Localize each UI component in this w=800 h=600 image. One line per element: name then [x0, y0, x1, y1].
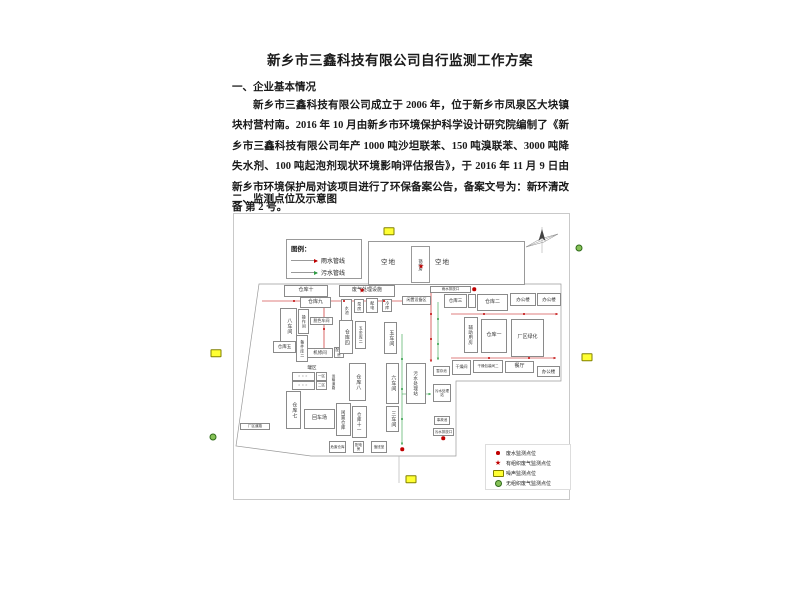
legend-row-sewage: 污水管线 — [291, 268, 357, 277]
diagram-box: 污水排放口 — [433, 428, 454, 436]
diagram-box: 污水处理站 — [406, 363, 426, 404]
diagram-box: 干燥间 — [452, 360, 471, 375]
fugitive-gas-point-label: 无组织废气监测点位 — [506, 480, 551, 487]
document-page: 新乡市三鑫科技有限公司自行监测工作方案 一、企业基本情况 新乡市三鑫科技有限公司… — [0, 0, 800, 600]
diagram-box: ○○○ — [292, 372, 315, 381]
diagram-box: ○○○ — [292, 381, 315, 390]
legend-sewage-label: 污水管线 — [321, 268, 345, 277]
diagram-box: 仓库七 — [286, 391, 301, 429]
diagram-box: 仓库八 — [349, 363, 366, 401]
diagram-box: 五金库二 — [355, 321, 366, 349]
diagram-box: 值班室 — [371, 441, 387, 453]
diagram-box: 污水处理站 — [433, 384, 451, 402]
diagram-box: 仓库一 — [481, 319, 507, 353]
diagram-frame: 图例： 雨水管线 污水管线 空地 锅炉房 空地 — [233, 213, 570, 500]
point-legend-row: ★ 有组织废气监测点位 — [492, 458, 570, 468]
diagram-box: 闲置仓库 — [336, 403, 351, 436]
noise-point-west — [211, 349, 222, 357]
diagram-box: 回车场 — [304, 409, 335, 429]
organized-gas-point-label: 有组织废气监测点位 — [506, 460, 551, 467]
wastewater-point-outlet-south — [441, 436, 445, 440]
diagram-box: 一区 — [316, 372, 327, 381]
rain-pipe-dot — [430, 338, 432, 340]
diagram-box: 闲置设备区 — [402, 296, 431, 305]
diagram-box: 配电房 — [353, 441, 364, 453]
section-heading-company-info: 一、企业基本情况 — [232, 79, 316, 94]
legend-rain-label: 雨水管线 — [321, 256, 345, 265]
organized-gas-point-icon: ★ — [492, 460, 504, 467]
rain-pipe-dot — [383, 300, 385, 302]
diagram-box: 脱色车间 — [310, 317, 333, 325]
diagram-box: 办公楼 — [510, 293, 536, 306]
wastewater-point-label: 废水监测点位 — [506, 450, 536, 457]
diagram-box: 六车间 — [386, 363, 399, 404]
diagram-box: 餐厅 — [505, 361, 534, 373]
rain-pipe-dot — [483, 313, 485, 315]
point-legend-row: 噪声监测点位 — [492, 468, 570, 478]
organized-gas-point-boiler: ★ — [418, 264, 424, 271]
organized-gas-point-treatment: ★ — [359, 288, 365, 295]
diagram-box: 暂存池 — [433, 366, 450, 376]
diagram-box: 辅助用房 — [464, 317, 478, 353]
monitoring-point-legend: 废水监测点位 ★ 有组织废气监测点位 噪声监测点位 无组织废气监测点位 — [485, 444, 571, 490]
noise-point-east — [582, 353, 593, 361]
rain-pipe-dot — [488, 357, 490, 359]
legend-row-rain: 雨水管线 — [291, 256, 357, 265]
diagram-box: 仓库四 — [339, 320, 353, 354]
rain-pipe-dot — [528, 357, 530, 359]
diagram-box: 办公楼 — [537, 293, 561, 306]
diagram-box: 操作间 — [298, 309, 309, 334]
wastewater-point-main — [400, 447, 404, 451]
sewage-pipeline-arrow-icon — [291, 272, 317, 273]
diagram-box: 机修间 — [307, 348, 333, 358]
open-area-right-label: 空地 — [435, 256, 450, 266]
sewage-pipe-dot — [437, 343, 439, 345]
rain-pipe-dot — [323, 328, 325, 330]
open-area-block: 空地 锅炉房 空地 — [368, 241, 525, 285]
noise-point-label: 噪声监测点位 — [506, 470, 536, 477]
compass-icon — [520, 226, 564, 256]
noise-point-south — [406, 475, 417, 483]
diagram-box: 办公楼 — [537, 366, 560, 377]
sewage-pipe-dot — [401, 388, 403, 390]
point-legend-row: 无组织废气监测点位 — [492, 478, 570, 488]
diagram-box: 三车间 — [386, 406, 399, 432]
diagram-box: 厂区绿化 — [511, 319, 544, 357]
diagram-box: 事故池 — [434, 416, 450, 425]
point-legend-row: 废水监测点位 — [492, 448, 570, 458]
diagram-box: 雨水排放口 — [430, 286, 471, 293]
diagram-box — [468, 294, 476, 308]
diagram-box: 运输道路 — [330, 365, 338, 398]
section-heading-monitoring-map: 二、监测点位及示意图 — [232, 191, 337, 206]
diagram-box: 干燥包装间二 — [473, 360, 503, 373]
diagram-box: 八车间 — [280, 308, 297, 345]
open-area-left-label: 空地 — [381, 256, 396, 266]
fugitive-gas-point-ne — [576, 245, 583, 252]
document-title: 新乡市三鑫科技有限公司自行监测工作方案 — [0, 49, 800, 69]
diagram-box: 废气处理设施 — [339, 285, 395, 297]
diagram-box: 仓库三 — [444, 294, 467, 308]
legend-title: 图例： — [291, 243, 357, 253]
diagram-box: 危废仓库 — [329, 441, 346, 453]
pipeline-legend: 图例： 雨水管线 污水管线 — [286, 239, 362, 279]
diagram-box: 五车间 — [384, 322, 397, 354]
diagram-box: 二区 — [316, 381, 327, 390]
diagram-box: 厂区道路 — [240, 423, 270, 430]
diagram-box: 仓库十 — [284, 285, 328, 297]
sewage-pipe-dot — [401, 358, 403, 360]
noise-point-icon — [492, 470, 504, 477]
diagram-box: 配电 — [366, 298, 378, 313]
rain-pipe-dot — [523, 313, 525, 315]
sewage-pipe-dot — [437, 318, 439, 320]
rain-pipe-dot — [430, 313, 432, 315]
fugitive-gas-point-icon — [492, 480, 504, 487]
diagram-box: 泵房 — [354, 299, 364, 313]
rain-pipe-dot — [293, 300, 295, 302]
diagram-box: 仓库二 — [477, 294, 508, 311]
sewage-pipe-dot — [401, 418, 403, 420]
diagram-box: 水池 — [341, 299, 352, 321]
diagram-box: 仓库十一 — [352, 406, 367, 438]
diagram-box: 仓库五 — [273, 341, 296, 353]
diagram-box: 仓库九 — [300, 297, 331, 308]
diagram-box: 罐区 — [304, 364, 320, 372]
wastewater-point-outlet-north — [472, 287, 476, 291]
rain-pipe-dot — [343, 300, 345, 302]
noise-point-north — [384, 227, 395, 235]
wastewater-point-icon — [492, 451, 504, 455]
rain-pipeline-arrow-icon — [291, 260, 317, 261]
fugitive-gas-point-sw — [210, 434, 217, 441]
